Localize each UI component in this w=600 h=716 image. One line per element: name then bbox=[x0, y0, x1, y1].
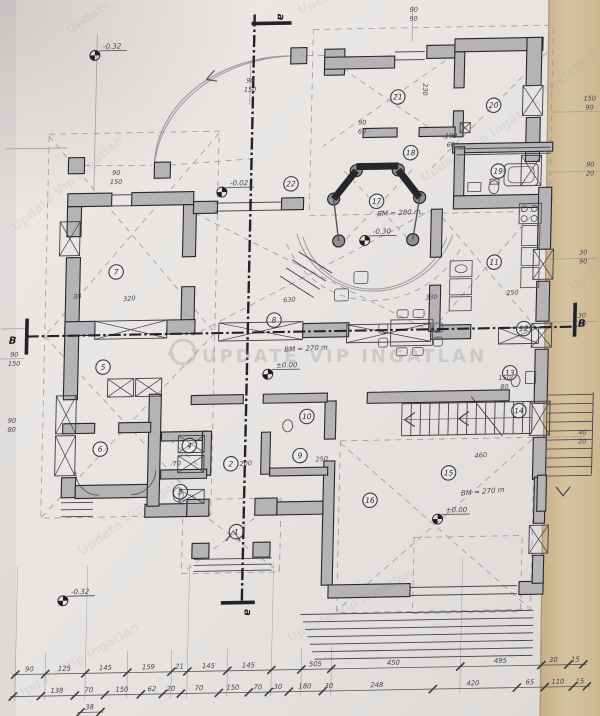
dimension-value: 20 bbox=[586, 169, 594, 177]
section-label-b: B bbox=[9, 336, 17, 347]
dimension-value: 150 bbox=[498, 374, 511, 382]
room-number-label: 6 bbox=[98, 445, 103, 454]
dimension-value: 330 bbox=[425, 293, 438, 302]
section-label-a: a bbox=[242, 609, 253, 616]
dimension-value: 505 bbox=[309, 660, 322, 668]
dimension-value: 90 bbox=[10, 351, 18, 359]
wall-segment bbox=[132, 192, 194, 206]
room-number-label: 7 bbox=[114, 268, 119, 277]
dimension-value: 90 bbox=[246, 77, 254, 85]
level-value: -0.32 bbox=[103, 42, 122, 50]
dimension-value: 250 bbox=[506, 288, 519, 297]
dimension-value: 70 bbox=[254, 683, 263, 691]
garden-step bbox=[61, 502, 93, 503]
wall-segment bbox=[532, 555, 544, 583]
wall-segment bbox=[253, 542, 270, 557]
dimension-value: 150 bbox=[226, 684, 239, 692]
room-number-label: 17 bbox=[372, 197, 382, 206]
wall-segment bbox=[167, 320, 195, 335]
wall-segment bbox=[291, 48, 307, 64]
room-number-label: 16 bbox=[365, 496, 375, 505]
garden-step bbox=[61, 509, 93, 510]
dimension-value: 90 bbox=[579, 257, 587, 265]
dimension-value: 60 bbox=[358, 128, 366, 136]
wall-segment bbox=[192, 543, 209, 558]
room-number-label: 15 bbox=[444, 468, 454, 477]
wall-segment bbox=[430, 209, 442, 257]
dimension-value: 450 bbox=[387, 659, 400, 667]
dimension-value: 420 bbox=[466, 679, 479, 687]
wall-segment bbox=[61, 478, 75, 498]
dimension-value: 90 bbox=[112, 169, 120, 177]
dimension-value: 65 bbox=[526, 678, 535, 686]
room-number-label: 5 bbox=[101, 363, 106, 372]
room-number-label: 10 bbox=[302, 412, 312, 421]
dimension-value: 15 bbox=[571, 655, 580, 663]
wall-segment bbox=[261, 432, 271, 474]
dimension-value: 460 bbox=[474, 451, 487, 460]
wall-segment bbox=[255, 498, 277, 515]
floor-plan-photo: 12345678910111213141516171819202122-0.32… bbox=[0, 0, 600, 716]
wall-segment bbox=[193, 201, 217, 213]
wall-segment bbox=[321, 461, 335, 585]
section-bar bbox=[221, 602, 255, 603]
wall-segment bbox=[191, 395, 243, 405]
dimension-value: 100 bbox=[445, 132, 458, 140]
watermark-center-text: UPDATE VIP INGATLAN bbox=[202, 346, 487, 367]
room-number-label: 19 bbox=[493, 167, 503, 176]
level-value: ±0.00 bbox=[446, 506, 468, 514]
dimension-value: 145 bbox=[99, 664, 112, 672]
wall-segment bbox=[65, 321, 95, 336]
wall-segment bbox=[537, 475, 547, 511]
dimension-value: 62 bbox=[148, 685, 157, 693]
dimension-value: 21 bbox=[175, 663, 184, 671]
wall-segment bbox=[281, 198, 303, 210]
section-bar bbox=[575, 303, 576, 337]
dimension-value: 150 bbox=[583, 94, 596, 102]
dimension-value: 630 bbox=[283, 295, 296, 304]
room-number-label: 18 bbox=[406, 148, 416, 157]
level-value: -0.02 bbox=[230, 179, 249, 187]
dimension-value: 150 bbox=[8, 360, 21, 368]
window-glazing-line bbox=[395, 51, 425, 52]
dimension-value: 70 bbox=[85, 686, 94, 694]
dimension-value: 20 bbox=[578, 437, 586, 445]
room-number-label: 4 bbox=[187, 441, 192, 450]
room-number-label: 8 bbox=[272, 316, 277, 325]
section-label-b: B bbox=[578, 318, 586, 329]
wall-segment bbox=[119, 422, 151, 433]
dimension-value: 150 bbox=[244, 85, 257, 93]
room-number-label: 22 bbox=[286, 179, 296, 188]
wall-segment bbox=[324, 401, 336, 439]
room-number-label: 11 bbox=[489, 258, 499, 267]
dimension-value: 250 bbox=[315, 455, 328, 464]
room-number-label: 9 bbox=[298, 451, 303, 460]
room-number-label: 20 bbox=[489, 101, 499, 110]
dimension-value: 159 bbox=[142, 663, 155, 671]
floor-plan-canvas: 12345678910111213141516171819202122-0.32… bbox=[0, 0, 600, 716]
dimension-value: 38 bbox=[85, 703, 94, 711]
dimension-value: 30 bbox=[579, 248, 587, 256]
dimension-value: 200 bbox=[239, 459, 252, 468]
wall-segment bbox=[187, 499, 209, 516]
wall-segment bbox=[526, 37, 542, 85]
wall-segment bbox=[325, 56, 395, 69]
dimension-value: 320 bbox=[123, 294, 136, 303]
section-bar bbox=[26, 319, 27, 355]
dimension-value: 230 bbox=[421, 83, 429, 96]
dimension-value: 38 bbox=[73, 292, 82, 301]
dimension-value: 180 bbox=[298, 682, 311, 690]
dimension-value: 90 bbox=[358, 119, 366, 127]
wall-segment bbox=[534, 349, 548, 403]
room-number-label: 21 bbox=[393, 92, 403, 101]
dimension-value: 110 bbox=[551, 678, 564, 686]
dimension-value: 20 bbox=[167, 685, 176, 693]
wall-segment bbox=[154, 162, 170, 178]
dimension-value: 150 bbox=[110, 178, 123, 186]
dimension-value: 90 bbox=[409, 15, 417, 23]
dimension-value: 80 bbox=[7, 426, 15, 434]
wall-segment bbox=[263, 393, 327, 403]
dimension-value: 90 bbox=[8, 417, 16, 425]
wall-segment bbox=[367, 390, 509, 404]
dimension-value: 30 bbox=[274, 683, 283, 691]
window-glazing-line bbox=[395, 59, 425, 60]
dimension-value: 15 bbox=[576, 677, 585, 685]
wall-segment bbox=[270, 467, 328, 476]
dimension-value: 30 bbox=[549, 656, 558, 664]
dimension-value: 90 bbox=[585, 103, 593, 111]
garden-step bbox=[61, 516, 93, 517]
dimension-value: 150 bbox=[115, 686, 128, 694]
dimension-value: 90 bbox=[410, 6, 418, 14]
level-value: -0.30 bbox=[373, 228, 392, 236]
dimension-value: 90 bbox=[25, 665, 34, 673]
dimension-value: 40 bbox=[578, 428, 586, 436]
bay-wall bbox=[356, 166, 398, 167]
room-number-label: 14 bbox=[514, 406, 524, 415]
room-number-label: 2 bbox=[228, 459, 233, 468]
wall-segment bbox=[454, 52, 465, 88]
dimension-value: 70 bbox=[195, 684, 204, 692]
dimension-value: 495 bbox=[494, 657, 507, 665]
dimension-value: 145 bbox=[242, 661, 255, 669]
dimension-value: 90 bbox=[586, 160, 594, 168]
wall-segment bbox=[277, 501, 323, 515]
wall-segment bbox=[532, 437, 546, 479]
dimension-value: 145 bbox=[202, 662, 215, 670]
dimension-value: 80 bbox=[500, 383, 508, 391]
wall-segment bbox=[363, 128, 397, 138]
wall-segment bbox=[63, 423, 95, 434]
dimension-value: 138 bbox=[50, 687, 64, 695]
level-value: -0.32 bbox=[71, 588, 90, 596]
dimension-value: 30 bbox=[325, 682, 334, 690]
wall-segment bbox=[68, 193, 112, 207]
section-label-a: a bbox=[275, 14, 286, 21]
section-bar bbox=[252, 23, 292, 24]
dimension-value: 248 bbox=[370, 681, 384, 689]
wall-segment bbox=[427, 45, 457, 59]
dimension-value: 70 bbox=[173, 460, 182, 469]
room-number-label: 1 bbox=[234, 527, 239, 536]
room-number-label: 12 bbox=[519, 324, 529, 333]
